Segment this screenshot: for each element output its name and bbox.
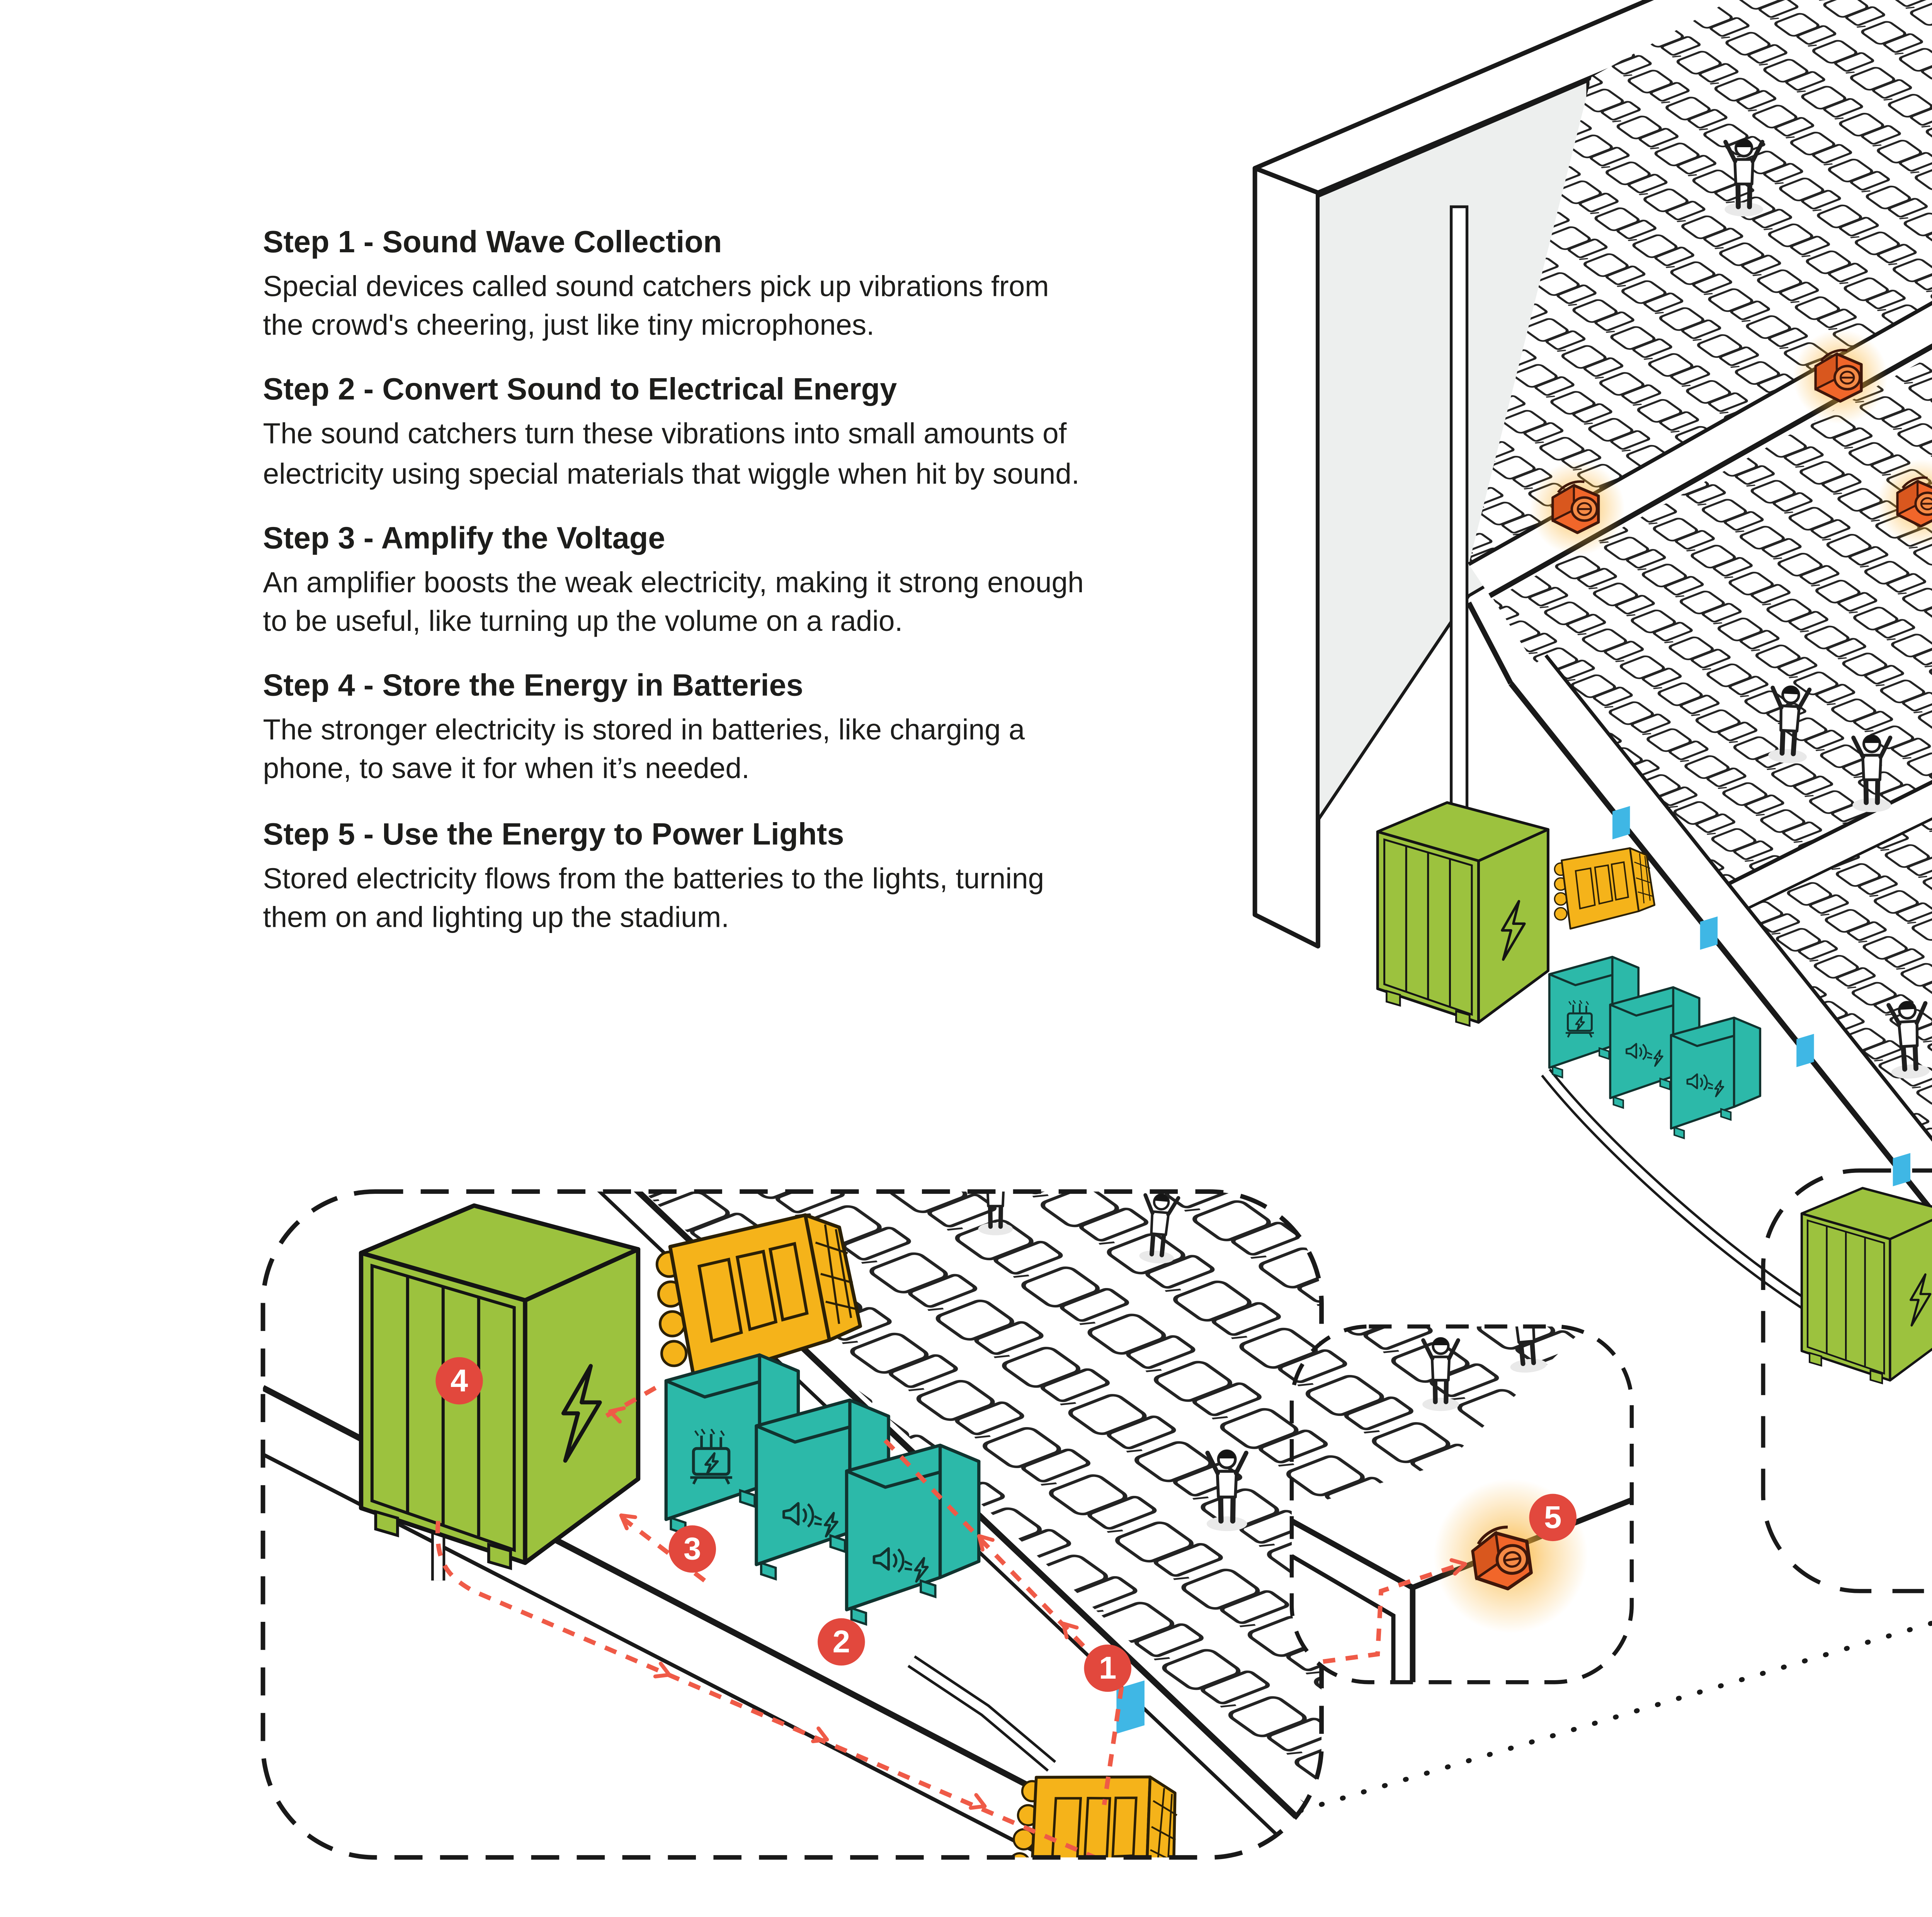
step-5-title: Step 5 - Use the Energy to Power Lights	[263, 816, 1087, 854]
battery-cabinet	[1802, 1188, 1932, 1383]
step-marker-4: 4	[435, 1357, 483, 1404]
step-1-description: Special devices called sound catchers pi…	[263, 268, 1087, 346]
stadium-light	[1793, 330, 1888, 424]
step-2-block: Step 2 - Convert Sound to Electrical Ene…	[263, 372, 1087, 494]
step-2-description: The sound catchers turn these vibrations…	[263, 416, 1087, 494]
wall-outer-face	[1255, 168, 1318, 946]
step-4-description: The stronger electricity is stored in ba…	[263, 712, 1087, 790]
step-5-block: Step 5 - Use the Energy to Power Lights …	[263, 816, 1087, 938]
step-3-description: An amplifier boosts the weak electricity…	[263, 564, 1087, 642]
detail-bubble-equipment: 4 3 2 1	[263, 1166, 1336, 1917]
step-marker-5: 5	[1529, 1494, 1577, 1541]
step-1-title: Step 1 - Sound Wave Collection	[263, 224, 1087, 263]
cable-mast	[1451, 207, 1467, 816]
sound-catcher-icon	[1612, 806, 1630, 839]
step-2-title: Step 2 - Convert Sound to Electrical Ene…	[263, 372, 1087, 410]
steps-list: Step 1 - Sound Wave Collection Special d…	[263, 224, 1087, 938]
step-4-title: Step 4 - Store the Energy in Batteries	[263, 668, 1087, 706]
sound-catcher-icon	[1893, 1153, 1910, 1186]
step-4-block: Step 4 - Store the Energy in Batteries T…	[263, 668, 1087, 790]
sound-catcher-icon	[1700, 916, 1718, 950]
step-3-title: Step 3 - Amplify the Voltage	[263, 520, 1087, 558]
sound-catcher-icon	[1796, 1034, 1814, 1067]
marker-number: 2	[833, 1624, 850, 1659]
steps-text-panel: Step 1 - Sound Wave Collection Special d…	[263, 224, 1139, 1066]
stadium-energy-diagram: Step 1 - Sound Wave Collection Special d…	[0, 0, 1932, 1917]
lower-equipment-cluster	[1763, 1171, 1932, 1629]
infographic-page: Step 1 - Sound Wave Collection Special d…	[0, 0, 1932, 1917]
marker-number: 5	[1544, 1500, 1561, 1535]
battery-cabinet	[1378, 802, 1548, 1026]
marker-number: 3	[684, 1531, 701, 1567]
step-1-block: Step 1 - Sound Wave Collection Special d…	[263, 224, 1087, 346]
step-marker-2: 2	[818, 1618, 865, 1665]
amplifier-unit	[1554, 848, 1655, 929]
step-5-description: Stored electricity flows from the batter…	[263, 860, 1087, 938]
marker-number: 1	[1099, 1650, 1116, 1686]
step-marker-3: 3	[669, 1525, 716, 1572]
step-marker-1: 1	[1084, 1645, 1131, 1692]
marker-number: 4	[451, 1363, 468, 1398]
detail-bubble-light: 5	[1292, 1298, 1632, 1686]
step-3-block: Step 3 - Amplify the Voltage An amplifie…	[263, 520, 1087, 642]
stadium-light	[1530, 461, 1625, 556]
